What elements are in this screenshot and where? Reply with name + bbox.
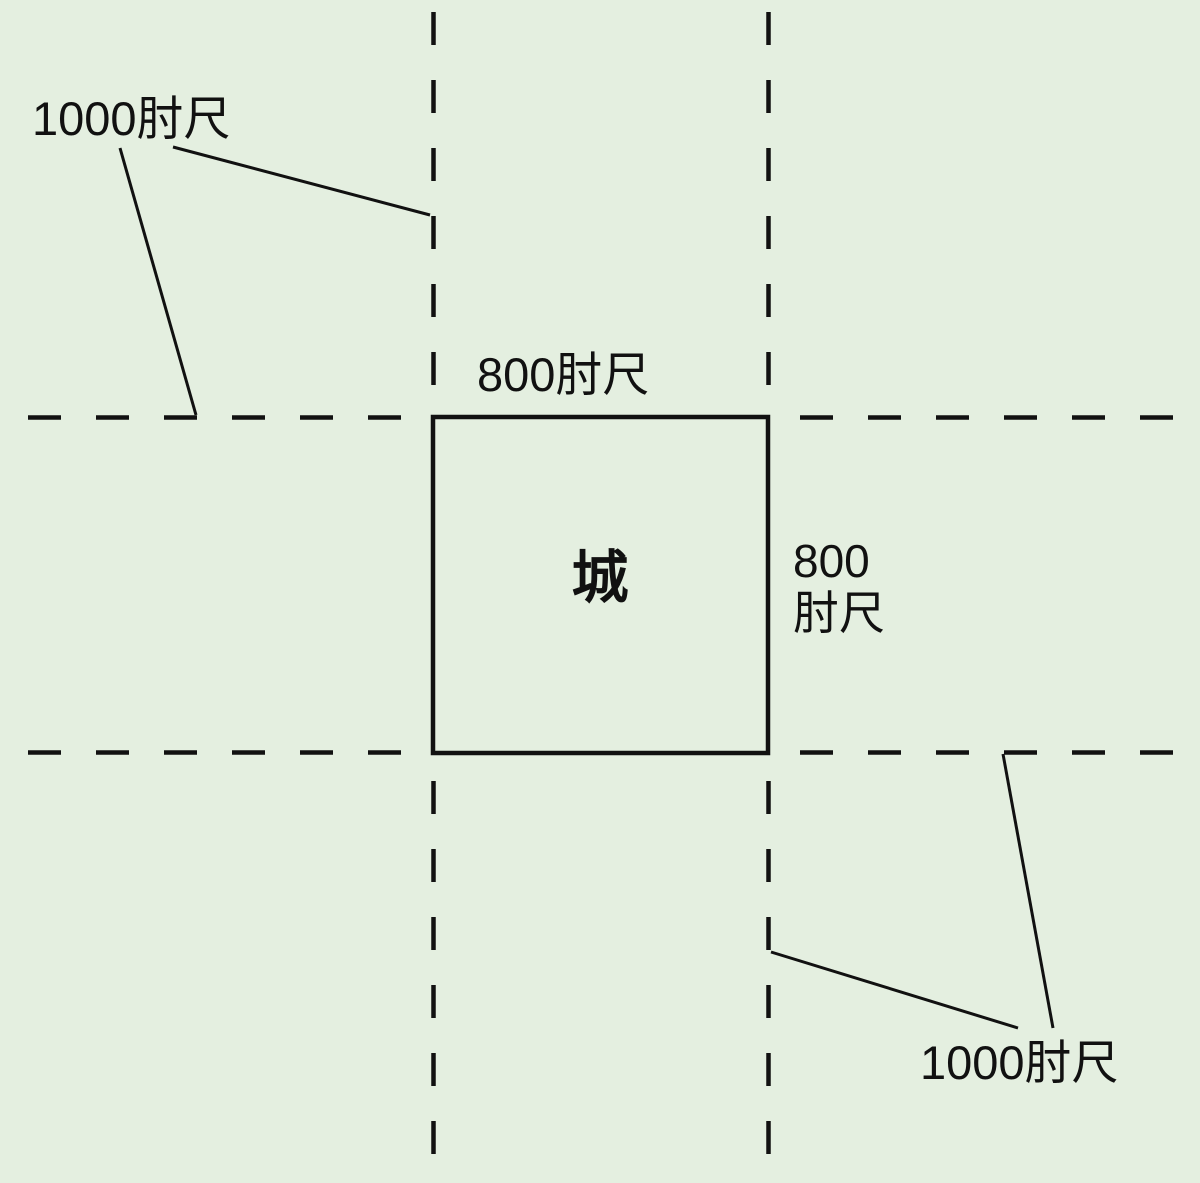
city-right-side-length-label-line1: 800 (793, 535, 870, 587)
city-label: 城 (572, 546, 629, 610)
city-right-side-length-label-line2: 肘尺 (793, 587, 885, 639)
diagram-canvas: 1000肘尺 800肘尺 800 肘尺 城 1000肘尺 (0, 0, 1200, 1183)
bottom-right-distance-label: 1000肘尺 (920, 1036, 1119, 1089)
top-left-distance-label: 1000肘尺 (32, 92, 231, 145)
city-top-side-length-label: 800肘尺 (477, 348, 649, 401)
